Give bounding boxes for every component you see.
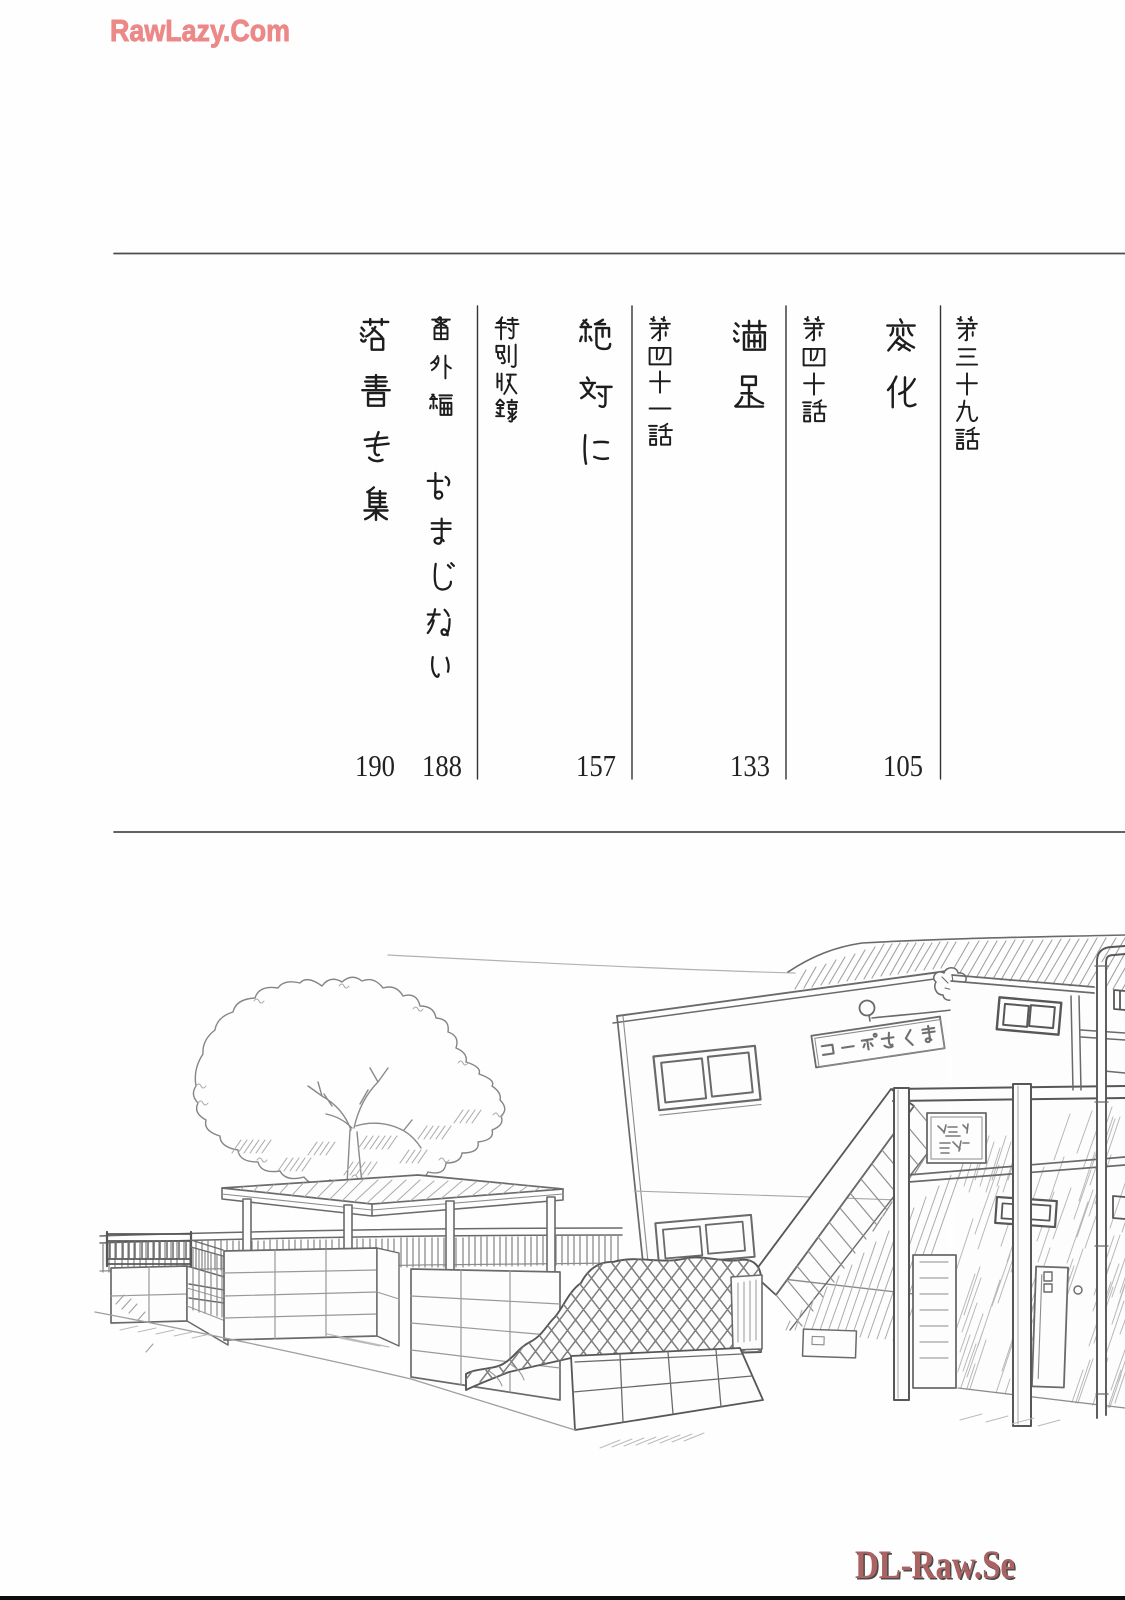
svg-text:DL-Raw.Se: DL-Raw.Se (855, 1542, 1015, 1587)
svg-text:188: 188 (422, 748, 462, 783)
svg-text:105: 105 (883, 748, 923, 783)
svg-text:190: 190 (355, 748, 395, 783)
svg-text:157: 157 (576, 748, 616, 783)
svg-text:133: 133 (730, 748, 770, 783)
svg-text:RawLazy.Com: RawLazy.Com (110, 13, 290, 48)
